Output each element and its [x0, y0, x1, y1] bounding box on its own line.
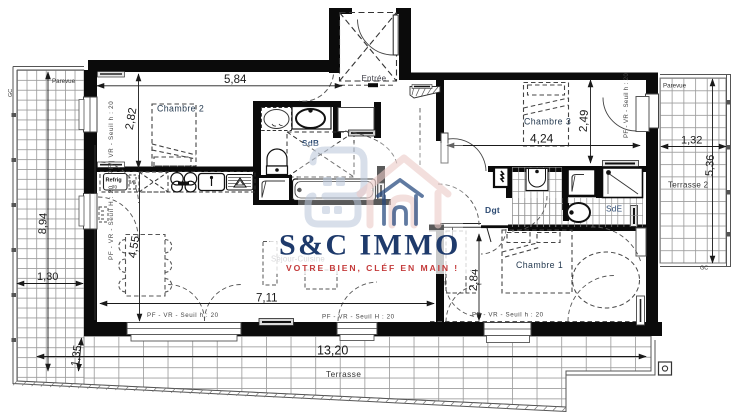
- svg-text:2,49: 2,49: [578, 109, 591, 132]
- svg-text:Chambre 3: Chambre 3: [524, 117, 571, 127]
- svg-text:Entrée: Entrée: [362, 74, 387, 83]
- svg-text:Parevue: Parevue: [52, 78, 76, 85]
- svg-text:VOTRE BIEN, CLÉF EN MAIN !: VOTRE BIEN, CLÉF EN MAIN !: [286, 263, 459, 273]
- svg-text:PF - VR - Seuil H : 20: PF - VR - Seuil H : 20: [108, 185, 115, 260]
- svg-text:Parevue: Parevue: [663, 83, 687, 90]
- svg-text:Refrig: Refrig: [106, 178, 123, 184]
- svg-text:Terrasse: Terrasse: [326, 370, 361, 379]
- svg-text:PF | VR - Seuil h : 20: PF | VR - Seuil h : 20: [108, 101, 115, 174]
- svg-text:SdE: SdE: [606, 205, 623, 214]
- svg-text:PF - VR - Seuil h : 20: PF - VR - Seuil h : 20: [472, 312, 544, 319]
- svg-text:Terrasse 2: Terrasse 2: [668, 181, 709, 190]
- svg-text:13,20: 13,20: [317, 344, 348, 358]
- svg-text:1,32: 1,32: [681, 135, 702, 147]
- svg-text:GC: GC: [8, 89, 14, 97]
- svg-text:GC: GC: [700, 266, 708, 272]
- svg-text:5,84: 5,84: [224, 74, 247, 86]
- svg-text:8,94: 8,94: [37, 213, 50, 235]
- svg-text:Chambre 2: Chambre 2: [157, 104, 204, 114]
- svg-text:PF - VR - Seuil h : 20: PF - VR - Seuil h : 20: [147, 312, 219, 319]
- svg-text:Dgt: Dgt: [485, 205, 500, 215]
- svg-text:S&C IMMO: S&C IMMO: [279, 229, 461, 262]
- svg-text:Chambre 1: Chambre 1: [516, 260, 563, 270]
- svg-text:7,11: 7,11: [256, 293, 278, 305]
- svg-text:PF - VR - Seuil H : 20: PF - VR - Seuil H : 20: [322, 314, 395, 321]
- svg-text:PF - VR - Seuil h : 20: PF - VR - Seuil h : 20: [623, 73, 630, 138]
- svg-text:1,30: 1,30: [37, 271, 58, 283]
- svg-text:4,24: 4,24: [530, 132, 554, 146]
- svg-text:5,36: 5,36: [704, 154, 717, 176]
